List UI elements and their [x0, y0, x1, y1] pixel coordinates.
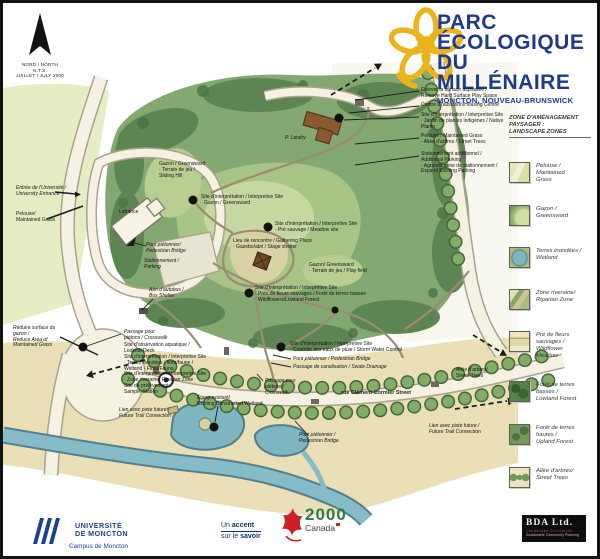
tagline-2b: savoir — [240, 533, 261, 540]
interpretive-site-dot — [79, 343, 88, 352]
legend-label: Pelouse / Maintained Grass — [536, 162, 565, 184]
park-map-poster: NORD / NORTH N.T.S. JUILLET / JULY 2000 … — [0, 0, 600, 559]
legend-item-maintained-grass: Pelouse / Maintained Grass — [509, 162, 599, 184]
legend-title-line1: ZONE D'AMÉNAGEMENT — [509, 115, 591, 122]
street-trees-swatch — [509, 467, 530, 488]
interpretive-site-dot — [277, 343, 286, 352]
canada-flag-icon — [336, 523, 340, 526]
maple-leaf-icon — [279, 506, 305, 548]
canada-word-text: Canada — [305, 523, 335, 533]
interpretive-site-dot — [264, 223, 273, 232]
wildflower-swatch — [509, 331, 530, 352]
udem-campus: Campus de Moncton — [69, 543, 128, 550]
tagline-1a: Un — [221, 522, 232, 529]
legend-label: Gazon / Greensward — [536, 205, 568, 220]
canada-wordmark: Canada — [305, 523, 347, 533]
legend-label: Forêt de terres basses / Lowland Forest — [536, 381, 576, 403]
legend: ZONE D'AMÉNAGEMENT PAYSAGER : LANDSCAPE … — [509, 115, 599, 509]
bda-logo-block: BDA Ltd. Landscape Architects Sustainabl… — [522, 515, 586, 542]
udem-name-line2: DE MONCTON — [75, 530, 128, 538]
legend-label: Zone riveraine/ Riparian Zone — [536, 289, 575, 304]
footer: UNIVERSITÉ DE MONCTON Campus de Moncton … — [3, 506, 597, 556]
interpretive-site-dot — [245, 289, 254, 298]
sample-station-marker — [159, 373, 173, 387]
title-line-3: DU MILLÉNAIRE — [437, 53, 599, 93]
title-line-2: ÉCOLOGIQUE — [437, 33, 599, 53]
legend-item-wetland: Terres inondées / Wetland — [509, 247, 599, 268]
legend-item-lowland-forest: Forêt de terres basses / Lowland Forest — [509, 381, 599, 403]
interpretive-site-dot — [189, 196, 198, 205]
greensward-swatch — [509, 205, 530, 226]
upland-forest-swatch — [509, 424, 530, 445]
north-arrow: NORD / NORTH N.T.S. JUILLET / JULY 2000 — [11, 11, 69, 79]
legend-item-wildflower: Pré de fleurs sauvages / Wildflower Mead… — [509, 331, 599, 360]
legend-label: Forêt de terres hautes / Upland Forest — [536, 424, 575, 446]
riparian-swatch — [509, 289, 530, 310]
interpretive-site-dot — [332, 307, 339, 314]
title-line-1: PARC — [437, 13, 599, 33]
legend-item-riparian: Zone riveraine/ Riparian Zone — [509, 289, 599, 310]
legend-label: Pré de fleurs sauvages / Wildflower Mead… — [536, 331, 569, 360]
legend-label: Terres inondées / Wetland — [536, 247, 581, 262]
legend-title: ZONE D'AMÉNAGEMENT PAYSAGER : LANDSCAPE … — [509, 115, 591, 138]
bda-name: BDA Ltd. — [526, 518, 582, 528]
lowland-forest-swatch — [509, 381, 530, 402]
wetland-swatch — [509, 247, 530, 268]
legend-title-line3: LANDSCAPE ZONES — [509, 129, 591, 136]
page-title: PARC ÉCOLOGIQUE DU MILLÉNAIRE MONCTON, N… — [437, 13, 599, 105]
maintained-grass-swatch — [509, 162, 530, 183]
canada-2000-text: 2000 Canada — [305, 506, 347, 533]
udem-tagline: Un accent sur le savoir — [221, 522, 261, 541]
interpretive-site-dot — [210, 423, 219, 432]
legend-items: Pelouse / Maintained GrassGazon / Greens… — [509, 162, 599, 488]
bda-subtitle-2: Sustainable Community Planning — [526, 533, 582, 537]
legend-item-upland-forest: Forêt de terres hautes / Upland Forest — [509, 424, 599, 446]
interpretive-site-dot — [335, 114, 344, 123]
date-label: JUILLET / JULY 2000 — [11, 73, 69, 79]
legend-item-greensward: Gazon / Greensward — [509, 205, 599, 226]
tagline-1b: accent — [232, 522, 254, 529]
canada-2000-logo: 2000 Canada — [279, 506, 347, 548]
legend-title-line2: PAYSAGER : — [509, 122, 591, 129]
udem-logo-block: UNIVERSITÉ DE MONCTON — [31, 514, 128, 546]
tagline-2a: sur le — [221, 533, 240, 540]
north-arrow-icon — [11, 11, 69, 57]
legend-item-street-trees: Allée d'arbres/ Street Trees — [509, 467, 599, 488]
canada-2000-number: 2000 — [305, 506, 347, 524]
legend-label: Allée d'arbres/ Street Trees — [536, 467, 573, 482]
udem-logo-icon — [31, 514, 65, 546]
title-subtitle: MONCTON, NOUVEAU-BRUNSWICK — [437, 96, 599, 105]
